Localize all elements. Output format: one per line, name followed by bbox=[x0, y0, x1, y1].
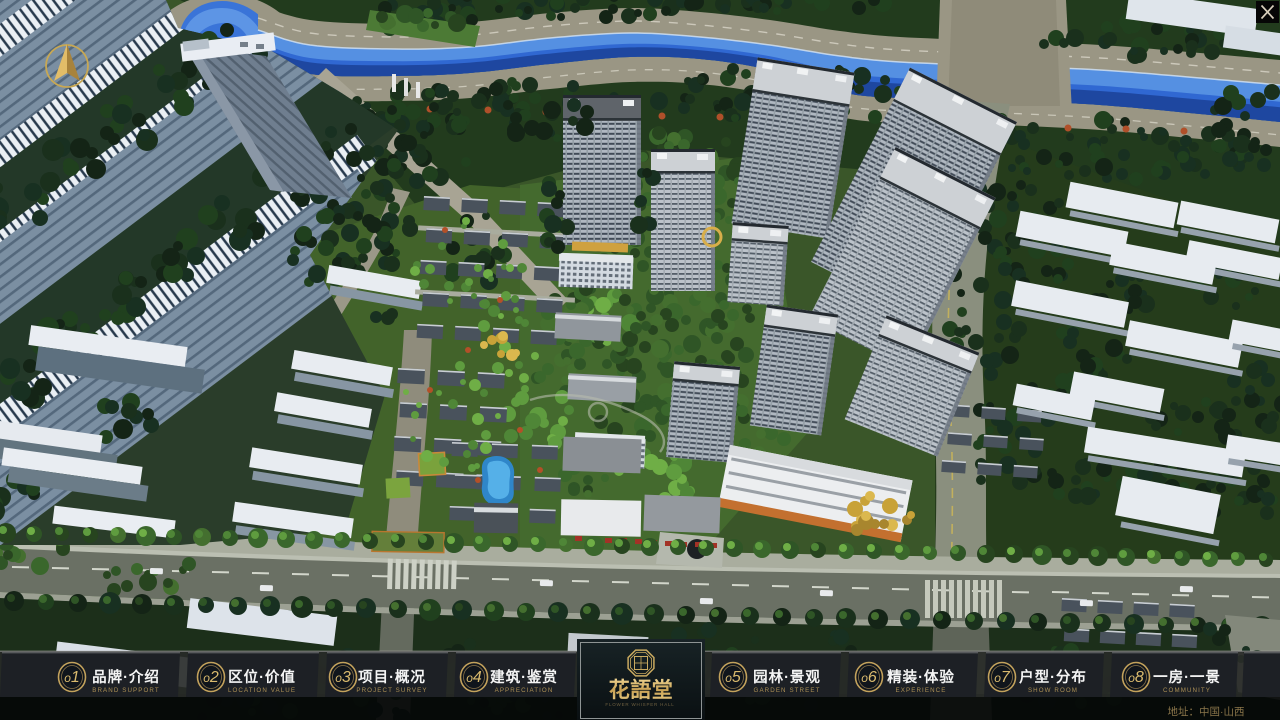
svg-text:o3: o3 bbox=[335, 669, 351, 686]
svg-text:地址：中国·山西: 地址：中国·山西 bbox=[1168, 705, 1245, 718]
svg-text:o4: o4 bbox=[466, 669, 482, 686]
svg-text:户型·分布: 户型·分布 bbox=[1019, 668, 1087, 686]
svg-text:o8: o8 bbox=[1128, 669, 1144, 686]
svg-text:花語堂: 花語堂 bbox=[609, 678, 674, 702]
svg-text:园林·景观: 园林·景观 bbox=[753, 668, 821, 686]
svg-text:项目·概况: 项目·概况 bbox=[358, 668, 426, 686]
svg-text:o2: o2 bbox=[203, 669, 219, 686]
svg-text:区位·价值: 区位·价值 bbox=[228, 668, 296, 686]
svg-text:SHOW ROOM: SHOW ROOM bbox=[1028, 687, 1078, 694]
svg-text:o1: o1 bbox=[64, 669, 80, 686]
svg-text:o7: o7 bbox=[994, 669, 1011, 686]
svg-text:品牌·介绍: 品牌·介绍 bbox=[92, 668, 160, 686]
svg-text:FLOWER WHISPER HALL: FLOWER WHISPER HALL bbox=[605, 702, 674, 707]
svg-text:o6: o6 bbox=[861, 669, 877, 686]
svg-text:APPRECIATION: APPRECIATION bbox=[495, 687, 554, 694]
svg-text:COMMUNITY: COMMUNITY bbox=[1163, 687, 1211, 694]
svg-text:GARDEN STREET: GARDEN STREET bbox=[754, 687, 821, 694]
svg-text:BRAND SUPPORT: BRAND SUPPORT bbox=[92, 687, 159, 694]
svg-text:o5: o5 bbox=[725, 669, 741, 686]
svg-text:LOCATION VALUE: LOCATION VALUE bbox=[228, 687, 296, 694]
svg-text:一房·一景: 一房·一景 bbox=[1153, 668, 1221, 686]
svg-text:建筑·鉴赏: 建筑·鉴赏 bbox=[490, 668, 558, 686]
svg-text:PROJECT SURVEY: PROJECT SURVEY bbox=[356, 687, 427, 694]
svg-text:精装·体验: 精装·体验 bbox=[887, 668, 955, 686]
svg-text:EXPERIENCE: EXPERIENCE bbox=[896, 687, 947, 694]
